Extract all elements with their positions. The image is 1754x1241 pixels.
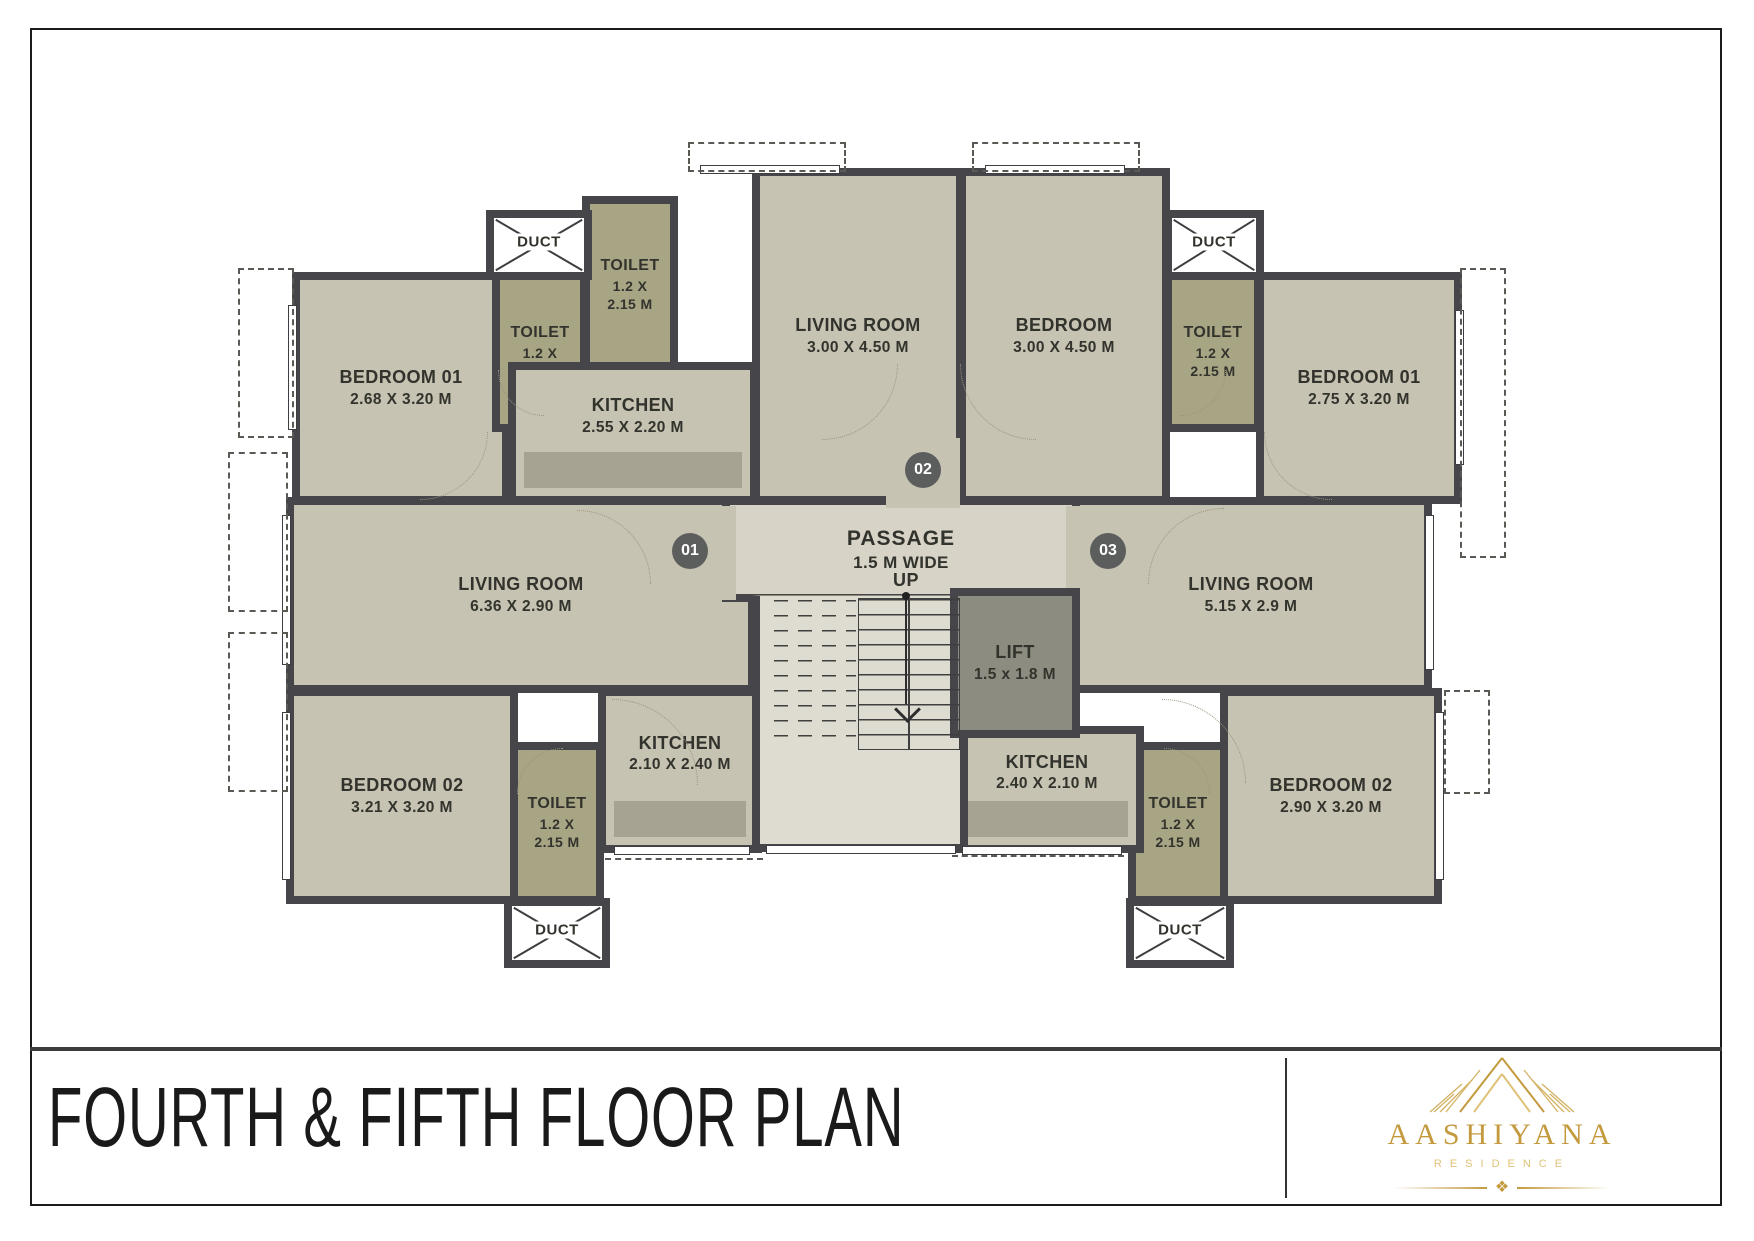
ornament-line	[1517, 1187, 1610, 1189]
bedroom-02-right-name: BEDROOM 02	[1269, 774, 1392, 797]
bedroom-01-left-label: BEDROOM 012.68 X 3.20 M	[339, 366, 462, 410]
toilet-3-dims: 1.2 X	[1184, 344, 1243, 362]
kitchen-1-platform	[524, 452, 742, 488]
toilet-3-label: TOILET1.2 X2.15 M	[1184, 323, 1243, 380]
kitchen-2-dims: 2.10 X 2.40 M	[629, 755, 731, 775]
living-room-left-label: LIVING ROOM6.36 X 2.90 M	[458, 573, 583, 617]
toilet-4-dims: 1.2 X	[528, 815, 587, 833]
toilet-5-dims: 2.15 M	[1149, 833, 1208, 851]
kitchen-1-dims: 2.55 X 2.20 M	[582, 418, 684, 438]
kitchen-1: KITCHEN2.55 X 2.20 M	[508, 362, 758, 504]
unit-badge-02: 02	[905, 452, 941, 488]
stairs-up-dot	[902, 592, 910, 600]
duct-shaft: DUCT	[486, 210, 592, 280]
kitchen-3: KITCHEN2.40 X 2.10 M	[950, 726, 1144, 853]
duct-label: DUCT	[532, 922, 582, 939]
bedroom-02-right-label: BEDROOM 022.90 X 3.20 M	[1269, 774, 1392, 818]
duct-label: DUCT	[514, 234, 564, 251]
unit-badge-01: 01	[672, 533, 708, 569]
stairs-center-line	[908, 598, 910, 750]
kitchen-2: KITCHEN2.10 X 2.40 M	[598, 688, 762, 853]
ornament-line	[1394, 1187, 1487, 1189]
stairs-treads-dashed	[764, 600, 856, 750]
toilet-4: TOILET1.2 X2.15 M	[510, 742, 604, 904]
stairs-up-label: UP	[893, 570, 919, 591]
passage-label: PASSAGE1.5 M WIDE	[847, 525, 955, 574]
toilet-4-name: TOILET	[528, 794, 587, 815]
title-logo-divider	[1285, 1058, 1287, 1198]
toilet-2-label: TOILET1.2 X2.15 M	[601, 256, 660, 313]
kitchen-2-name: KITCHEN	[629, 732, 731, 755]
window	[766, 845, 956, 854]
bedroom-01-right-name: BEDROOM 01	[1297, 366, 1420, 389]
kitchen-3-label: KITCHEN2.40 X 2.10 M	[996, 751, 1098, 795]
balcony-outline	[688, 142, 846, 172]
window	[1435, 712, 1444, 880]
living-room-top-dims: 3.00 X 4.50 M	[795, 338, 920, 358]
toilet-5-label: TOILET1.2 X2.15 M	[1149, 794, 1208, 851]
brand-logo: AASHIYANA RESIDENCE ❖	[1370, 1054, 1634, 1196]
duct-label: DUCT	[1189, 234, 1239, 251]
living-room-left-name: LIVING ROOM	[458, 573, 583, 596]
bedroom-top-label: BEDROOM3.00 X 4.50 M	[1013, 314, 1115, 358]
balcony-outline	[1444, 690, 1490, 794]
toilet-5-dims: 1.2 X	[1149, 815, 1208, 833]
kitchen-3-dims: 2.40 X 2.10 M	[996, 774, 1098, 794]
brand-tagline: RESIDENCE	[1370, 1158, 1634, 1170]
toilet-2-dims: 2.15 M	[601, 295, 660, 313]
kitchen-3-name: KITCHEN	[996, 751, 1098, 774]
balcony-outline	[972, 142, 1140, 172]
bedroom-02-right-dims: 2.90 X 3.20 M	[1269, 798, 1392, 818]
toilet-1-dims: 1.2 X	[511, 344, 570, 362]
toilet-3-name: TOILET	[1184, 323, 1243, 344]
bedroom-01-left: BEDROOM 012.68 X 3.20 M	[292, 272, 510, 504]
lift-name: LIFT	[974, 641, 1056, 664]
toilet-3-dims: 2.15 M	[1184, 362, 1243, 380]
title-band-separator	[30, 1047, 1722, 1051]
window	[962, 846, 1122, 855]
duct-shaft: DUCT	[504, 898, 610, 968]
toilet-4-label: TOILET1.2 X2.15 M	[528, 794, 587, 851]
toilet-3: TOILET1.2 X2.15 M	[1164, 272, 1262, 432]
bedroom-01-left-name: BEDROOM 01	[339, 366, 462, 389]
lift-label: LIFT1.5 x 1.8 M	[974, 641, 1056, 685]
bedroom-02-left-label: BEDROOM 023.21 X 3.20 M	[340, 774, 463, 818]
kitchen-1-label: KITCHEN2.55 X 2.20 M	[582, 394, 684, 438]
brand-ornament: ❖	[1370, 1180, 1634, 1196]
duct-shaft: DUCT	[1126, 898, 1234, 968]
toilet-1-name: TOILET	[511, 323, 570, 344]
projection-dashline	[952, 855, 1124, 857]
balcony-outline	[1460, 268, 1506, 558]
window	[614, 846, 750, 855]
bedroom-top-name: BEDROOM	[1013, 314, 1115, 337]
lift: LIFT1.5 x 1.8 M	[950, 588, 1080, 738]
toilet-2-name: TOILET	[601, 256, 660, 277]
toilet-5-name: TOILET	[1149, 794, 1208, 815]
floor-plan-sheet: BEDROOM 012.68 X 3.20 MTOILET1.2 X2.15 M…	[0, 0, 1754, 1241]
bedroom-01-right-label: BEDROOM 012.75 X 3.20 M	[1297, 366, 1420, 410]
brand-name: AASHIYANA	[1370, 1118, 1634, 1152]
window	[1425, 515, 1434, 670]
bedroom-01-left-dims: 2.68 X 3.20 M	[339, 390, 462, 410]
kitchen-2-platform	[614, 801, 746, 837]
duct-shaft: DUCT	[1164, 210, 1264, 280]
stairs-down-arrow-line	[905, 600, 907, 704]
kitchen-3-platform	[966, 801, 1128, 837]
toilet-2: TOILET1.2 X2.15 M	[582, 196, 678, 374]
unit-badge-03: 03	[1090, 533, 1126, 569]
living-room-top-name: LIVING ROOM	[795, 314, 920, 337]
bedroom-02-right: BEDROOM 022.90 X 3.20 M	[1220, 688, 1442, 904]
living-room-right-dims: 5.15 X 2.9 M	[1188, 597, 1313, 617]
kitchen-1-name: KITCHEN	[582, 394, 684, 417]
living-room-left-dims: 6.36 X 2.90 M	[458, 597, 583, 617]
bedroom-01-right: BEDROOM 012.75 X 3.20 M	[1256, 272, 1462, 504]
bedroom-top: BEDROOM3.00 X 4.50 M	[958, 168, 1170, 504]
bedroom-02-left-name: BEDROOM 02	[340, 774, 463, 797]
passage-name: PASSAGE	[847, 525, 955, 552]
bedroom-01-right-dims: 2.75 X 3.20 M	[1297, 390, 1420, 410]
balcony-outline	[228, 452, 288, 612]
bedroom-02-left-dims: 3.21 X 3.20 M	[340, 798, 463, 818]
bedroom-02-left: BEDROOM 023.21 X 3.20 M	[286, 688, 518, 904]
projection-dashline	[605, 858, 763, 860]
logo-rays-icon	[1402, 1054, 1602, 1116]
bedroom-top-dims: 3.00 X 4.50 M	[1013, 338, 1115, 358]
kitchen-2-label: KITCHEN2.10 X 2.40 M	[629, 732, 731, 776]
toilet-2-dims: 1.2 X	[601, 277, 660, 295]
lift-dims: 1.5 x 1.8 M	[974, 665, 1056, 685]
balcony-outline	[228, 632, 288, 792]
balcony-outline	[238, 268, 294, 438]
living-room-right-name: LIVING ROOM	[1188, 573, 1313, 596]
living-room-right-label: LIVING ROOM5.15 X 2.9 M	[1188, 573, 1313, 617]
ornament-icon: ❖	[1495, 1180, 1509, 1196]
toilet-4-dims: 2.15 M	[528, 833, 587, 851]
page-title: FOURTH & FIFTH FLOOR PLAN	[48, 1068, 904, 1166]
duct-label: DUCT	[1155, 922, 1205, 939]
living-room-top-label: LIVING ROOM3.00 X 4.50 M	[795, 314, 920, 358]
